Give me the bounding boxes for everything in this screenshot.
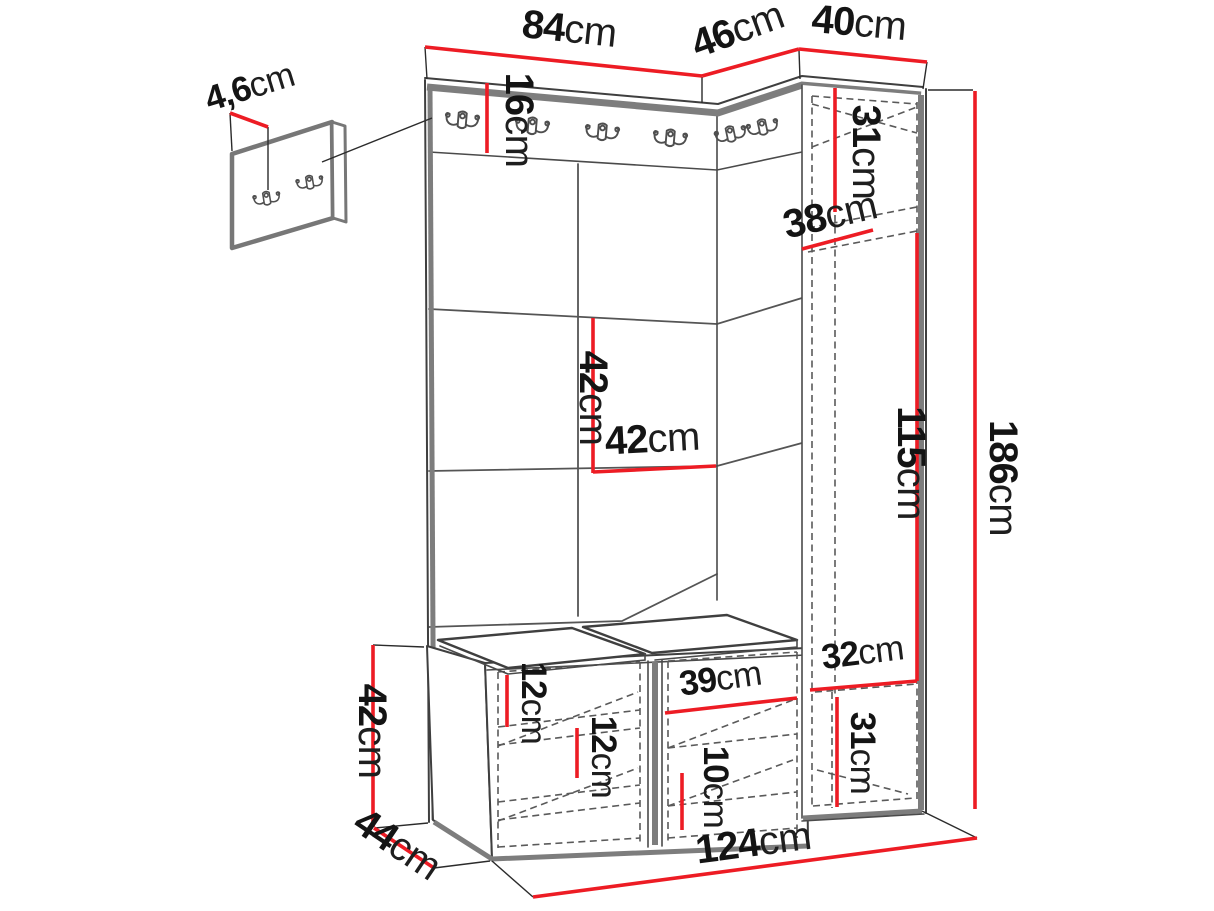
small-panel-side xyxy=(332,122,346,222)
dim-label-84: 84cm xyxy=(520,2,619,56)
dim-line-4-6 xyxy=(230,113,268,127)
dim-label-40: 40cm xyxy=(810,0,908,49)
dim-label-12-upper: 12cm xyxy=(514,662,553,745)
dim-label-42-bench: 42cm xyxy=(350,684,394,779)
small-wall-panel xyxy=(232,118,432,248)
dim-line-40 xyxy=(799,49,927,62)
dim-line-84 xyxy=(425,47,702,76)
dim-label-16: 16cm xyxy=(497,73,541,168)
dim-label-10: 10cm xyxy=(696,746,735,829)
dim-label-115: 115cm xyxy=(889,406,933,520)
dim-label-42-horizontal: 42cm xyxy=(604,415,701,464)
dim-label-186: 186cm xyxy=(981,420,1025,536)
dim-label-4-6: 4,6cm xyxy=(200,55,299,119)
dim-label-31-bottom: 31cm xyxy=(843,712,882,795)
furniture-dimension-diagram: 84cm 46cm 40cm 4,6cm 16cm 31cm 38cm 42cm… xyxy=(0,0,1214,911)
dim-label-12-lower: 12cm xyxy=(584,716,623,799)
diagram-page: 84cm 46cm 40cm 4,6cm 16cm 31cm 38cm 42cm… xyxy=(0,0,1214,911)
